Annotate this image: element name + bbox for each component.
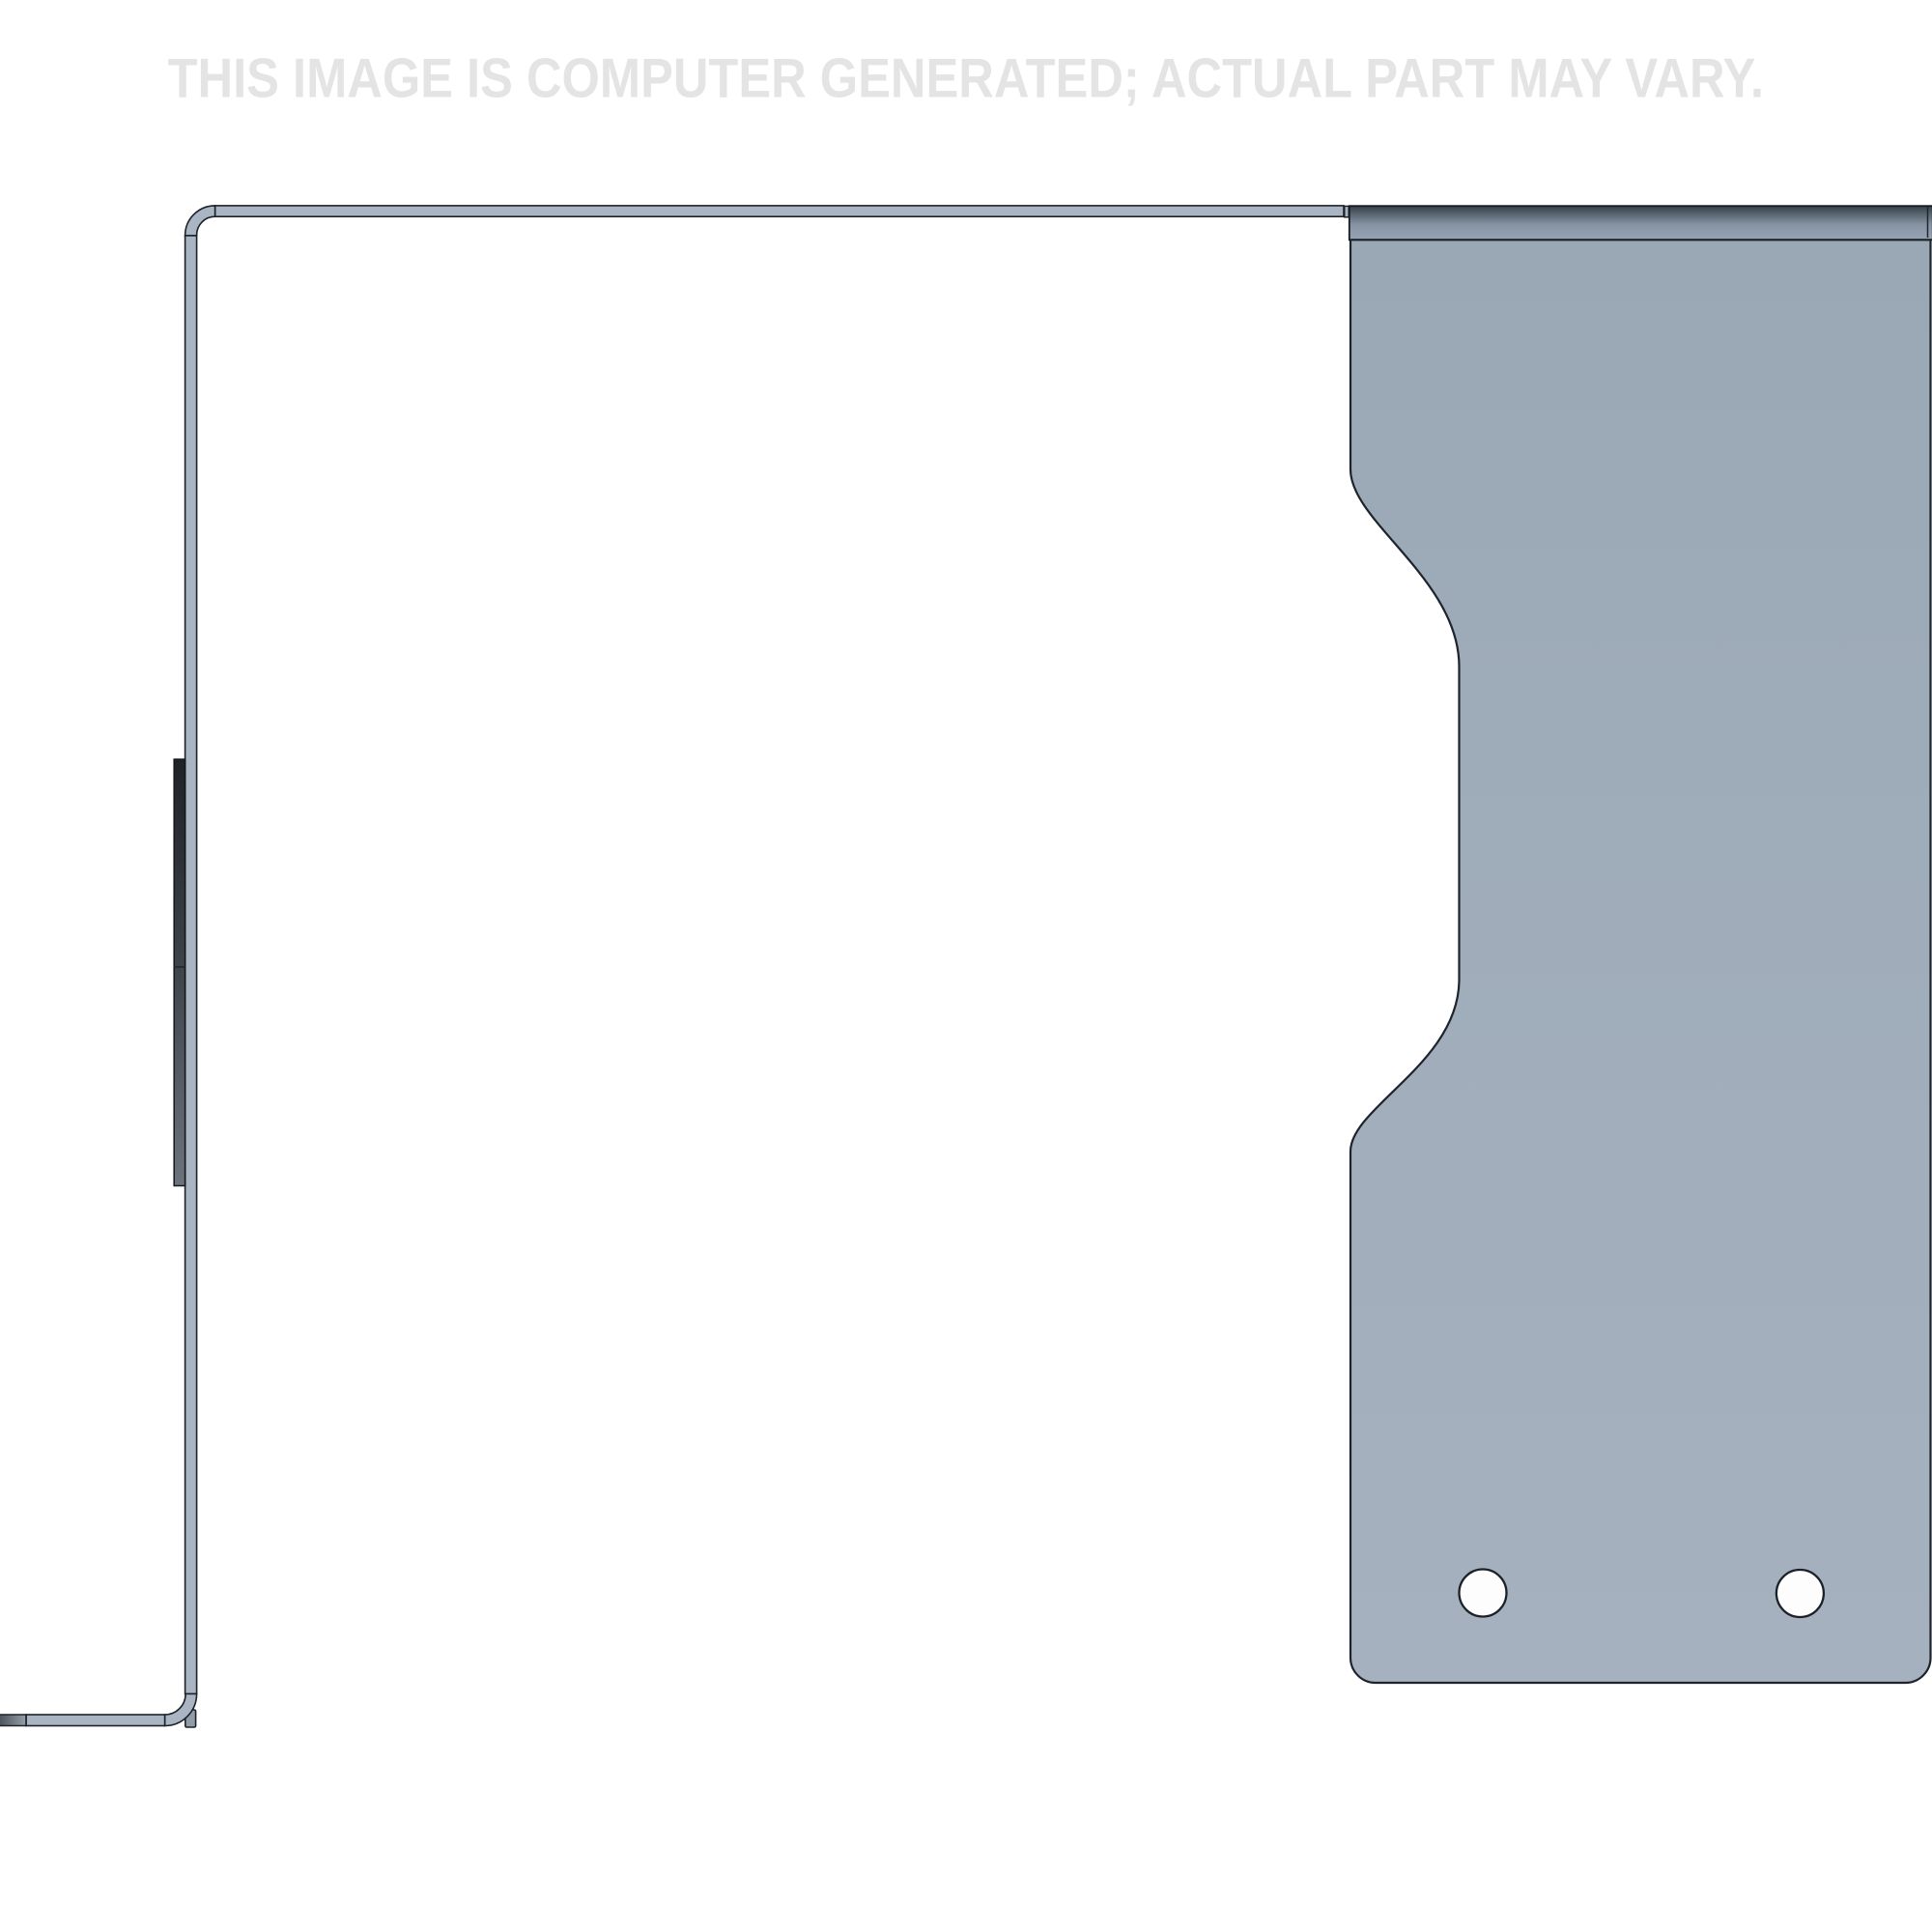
svg-text:THIS IMAGE IS COMPUTER GENERAT: THIS IMAGE IS COMPUTER GENERATED; ACTUAL… xyxy=(168,48,1764,110)
